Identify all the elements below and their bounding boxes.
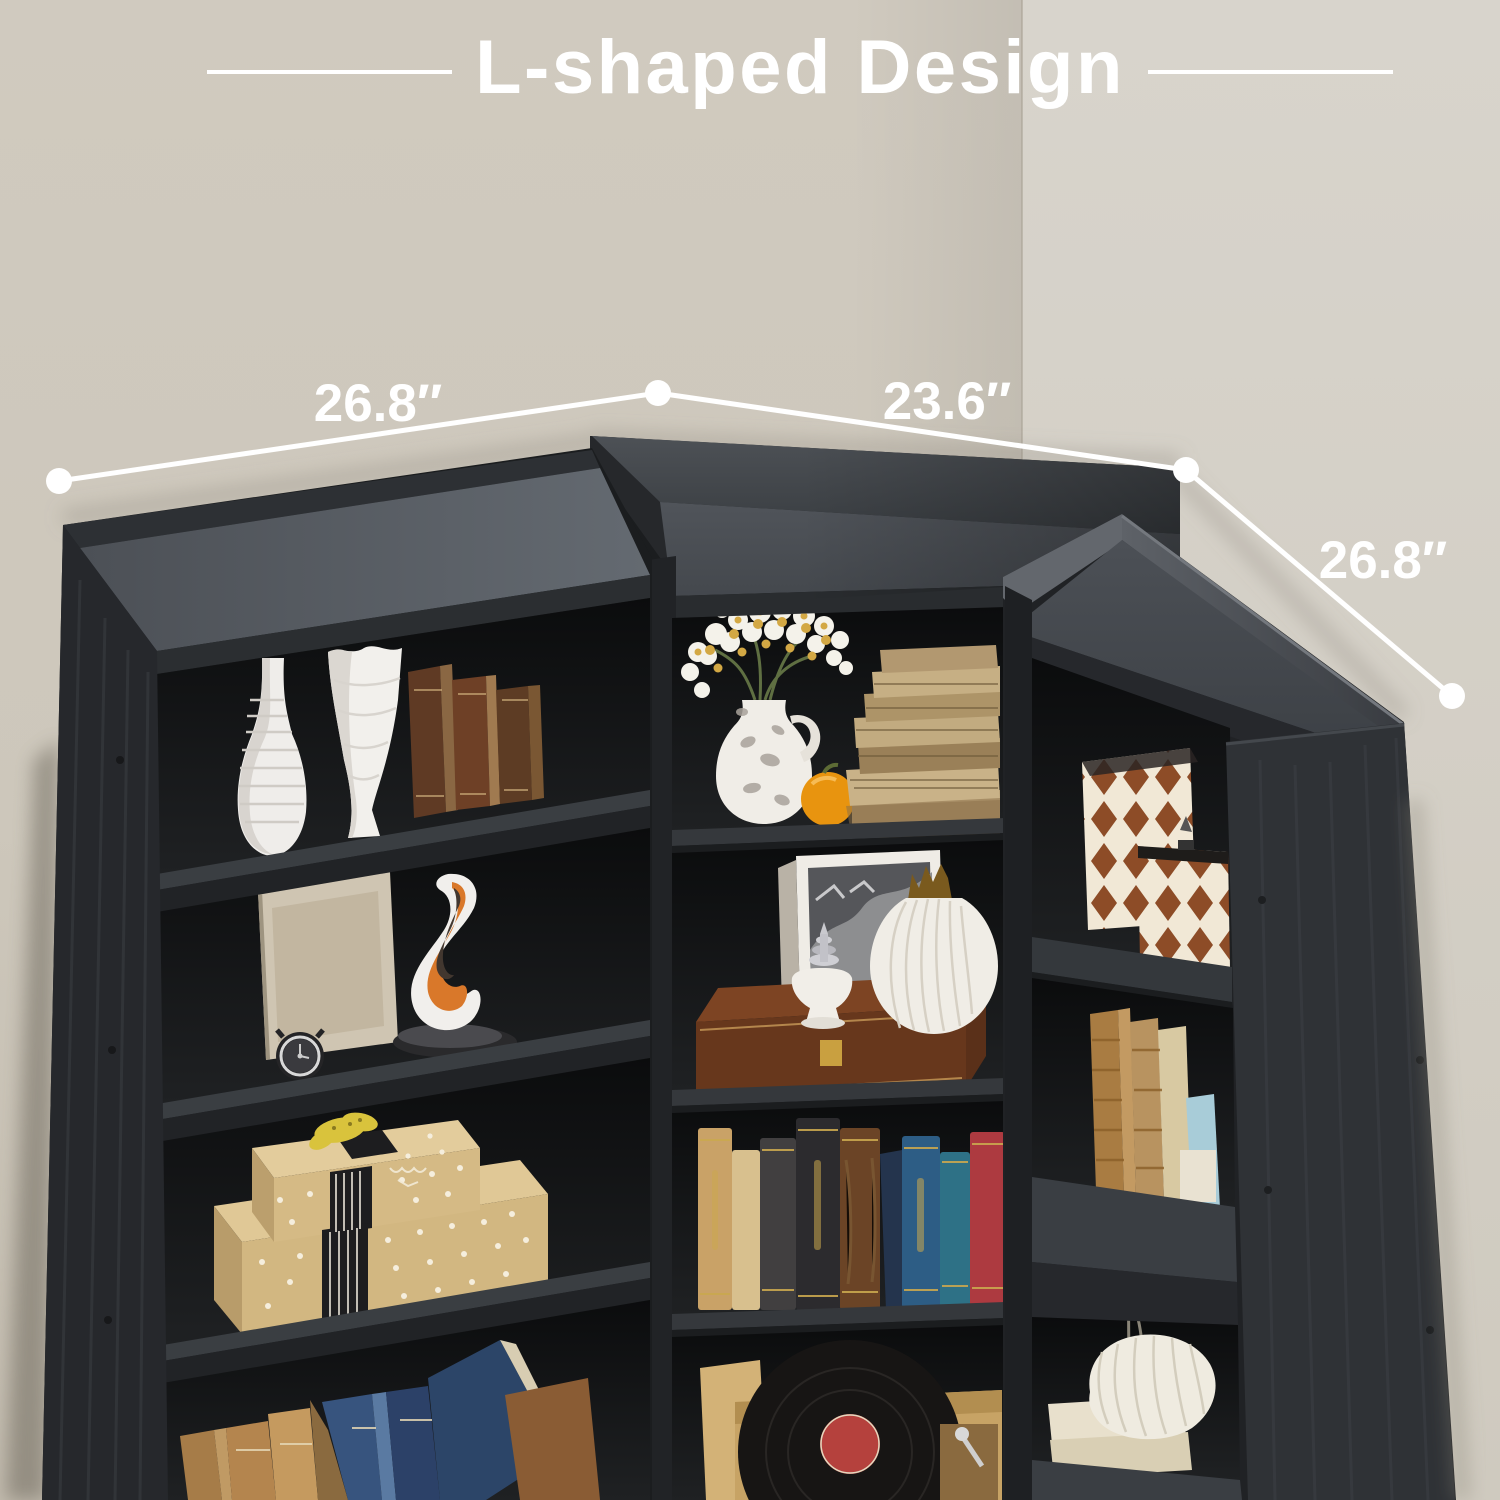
svg-text:L-shaped Design: L-shaped Design	[475, 25, 1125, 110]
svg-text:23.6″: 23.6″	[883, 372, 1012, 431]
svg-text:26.8″: 26.8″	[314, 374, 443, 433]
svg-text:26.8″: 26.8″	[1319, 531, 1448, 590]
